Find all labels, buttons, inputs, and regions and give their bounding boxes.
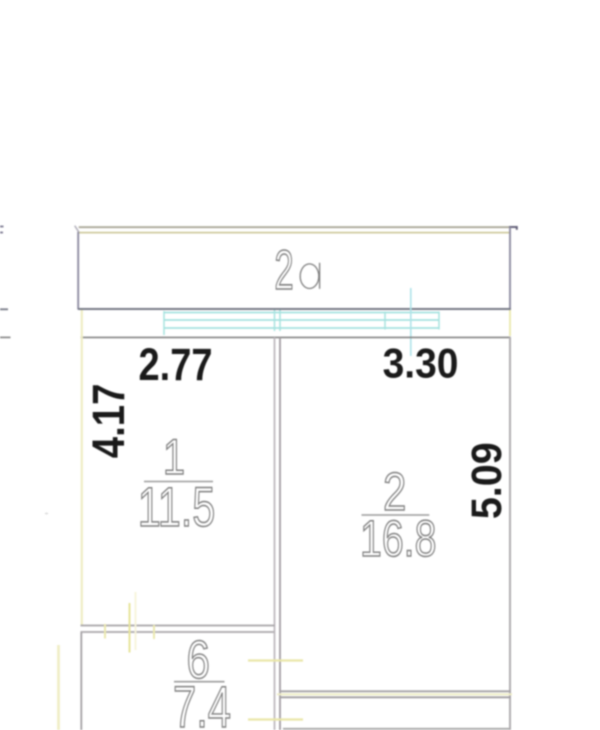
svg-text:3.30: 3.30	[383, 339, 459, 387]
svg-text:4.17: 4.17	[83, 384, 134, 459]
svg-text:2.77: 2.77	[139, 339, 213, 390]
svg-text:11.5: 11.5	[138, 476, 216, 539]
svg-text:7.4: 7.4	[173, 674, 231, 730]
svg-text:5.09: 5.09	[462, 442, 510, 519]
svg-text:16.8: 16.8	[360, 510, 436, 567]
svg-text:2: 2	[274, 239, 293, 302]
